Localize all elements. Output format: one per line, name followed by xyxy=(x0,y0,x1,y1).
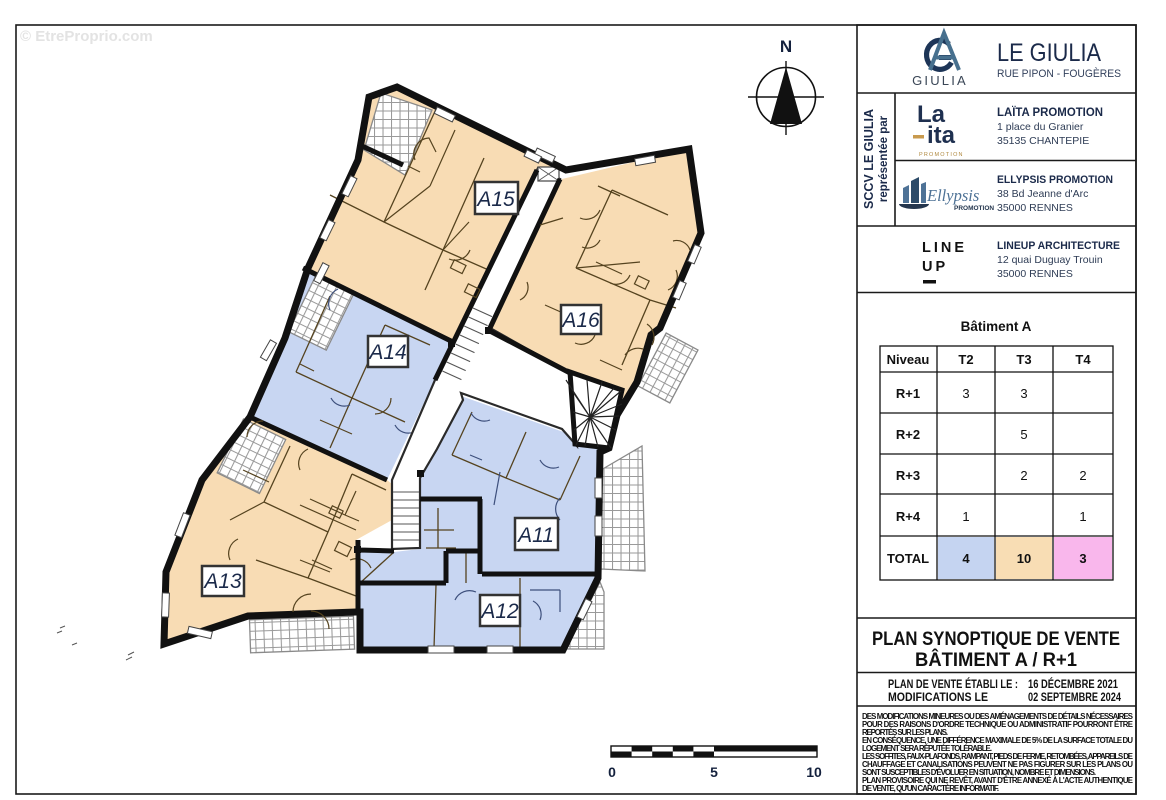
svg-text:SCCV LE GIULIA: SCCV LE GIULIA xyxy=(862,109,876,209)
svg-text:3: 3 xyxy=(1020,386,1027,401)
svg-text:ita: ita xyxy=(927,122,956,149)
svg-text:représentée par: représentée par xyxy=(878,115,890,202)
svg-text:1: 1 xyxy=(1079,509,1086,524)
svg-text:PROMOTION: PROMOTION xyxy=(919,152,964,158)
svg-text:GIULIA: GIULIA xyxy=(912,73,968,88)
svg-text:R+4: R+4 xyxy=(896,509,921,524)
svg-text:2: 2 xyxy=(1020,468,1027,483)
svg-text:LINE: LINE xyxy=(922,240,967,256)
svg-text:1 place du Granier: 1 place du Granier xyxy=(997,121,1084,133)
svg-text:UP: UP xyxy=(922,259,948,275)
svg-text:4: 4 xyxy=(962,551,970,566)
svg-text:12 quai Duguay Trouin: 12 quai Duguay Trouin xyxy=(997,254,1103,266)
svg-text:35000 RENNES: 35000 RENNES xyxy=(997,202,1073,214)
svg-text:DE VENTE, QU'UN CARACTÈRE INFO: DE VENTE, QU'UN CARACTÈRE INFORMATIF. xyxy=(862,784,999,793)
svg-text:PROMOTION: PROMOTION xyxy=(954,205,994,212)
svg-text:R+1: R+1 xyxy=(896,386,920,401)
svg-text:Ellypsis: Ellypsis xyxy=(926,186,979,205)
svg-text:16 DÉCEMBRE 2021: 16 DÉCEMBRE 2021 xyxy=(1028,676,1118,691)
svg-text:BÂTIMENT A / R+1: BÂTIMENT A / R+1 xyxy=(915,649,1077,671)
svg-text:10: 10 xyxy=(1017,551,1031,566)
svg-text:ELLYPSIS PROMOTION: ELLYPSIS PROMOTION xyxy=(997,174,1113,186)
svg-text:35000 RENNES: 35000 RENNES xyxy=(997,268,1073,280)
svg-text:38 Bd Jeanne d'Arc: 38 Bd Jeanne d'Arc xyxy=(997,188,1088,200)
svg-text:T4: T4 xyxy=(1075,352,1091,367)
svg-text:R+2: R+2 xyxy=(896,427,920,442)
svg-text:T3: T3 xyxy=(1016,352,1031,367)
svg-text:T2: T2 xyxy=(958,352,973,367)
svg-text:2: 2 xyxy=(1079,468,1086,483)
svg-text:PLAN SYNOPTIQUE DE VENTE: PLAN SYNOPTIQUE DE VENTE xyxy=(872,629,1120,650)
svg-text:Niveau: Niveau xyxy=(887,352,930,367)
svg-text:LINEUP ARCHITECTURE: LINEUP ARCHITECTURE xyxy=(997,240,1120,252)
svg-text:3: 3 xyxy=(962,386,969,401)
svg-text:RUE PIPON - FOUGÈRES: RUE PIPON - FOUGÈRES xyxy=(997,67,1121,80)
svg-text:1: 1 xyxy=(962,509,969,524)
svg-text:LAÏTA PROMOTION: LAÏTA PROMOTION xyxy=(997,104,1103,119)
svg-text:PLAN DE VENTE ÉTABLI LE :: PLAN DE VENTE ÉTABLI LE : xyxy=(888,676,1018,691)
svg-text:5: 5 xyxy=(1020,427,1027,442)
svg-text:35135 CHANTEPIE: 35135 CHANTEPIE xyxy=(997,135,1089,147)
svg-text:LE GIULIA: LE GIULIA xyxy=(997,39,1101,67)
svg-text:3: 3 xyxy=(1079,551,1086,566)
svg-text:Bâtiment A: Bâtiment A xyxy=(961,319,1032,334)
svg-text:MODIFICATIONS LE: MODIFICATIONS LE xyxy=(888,690,988,704)
svg-text:02 SEPTEMBRE 2024: 02 SEPTEMBRE 2024 xyxy=(1028,690,1121,704)
svg-text:R+3: R+3 xyxy=(896,468,920,483)
svg-text:TOTAL: TOTAL xyxy=(887,551,929,566)
